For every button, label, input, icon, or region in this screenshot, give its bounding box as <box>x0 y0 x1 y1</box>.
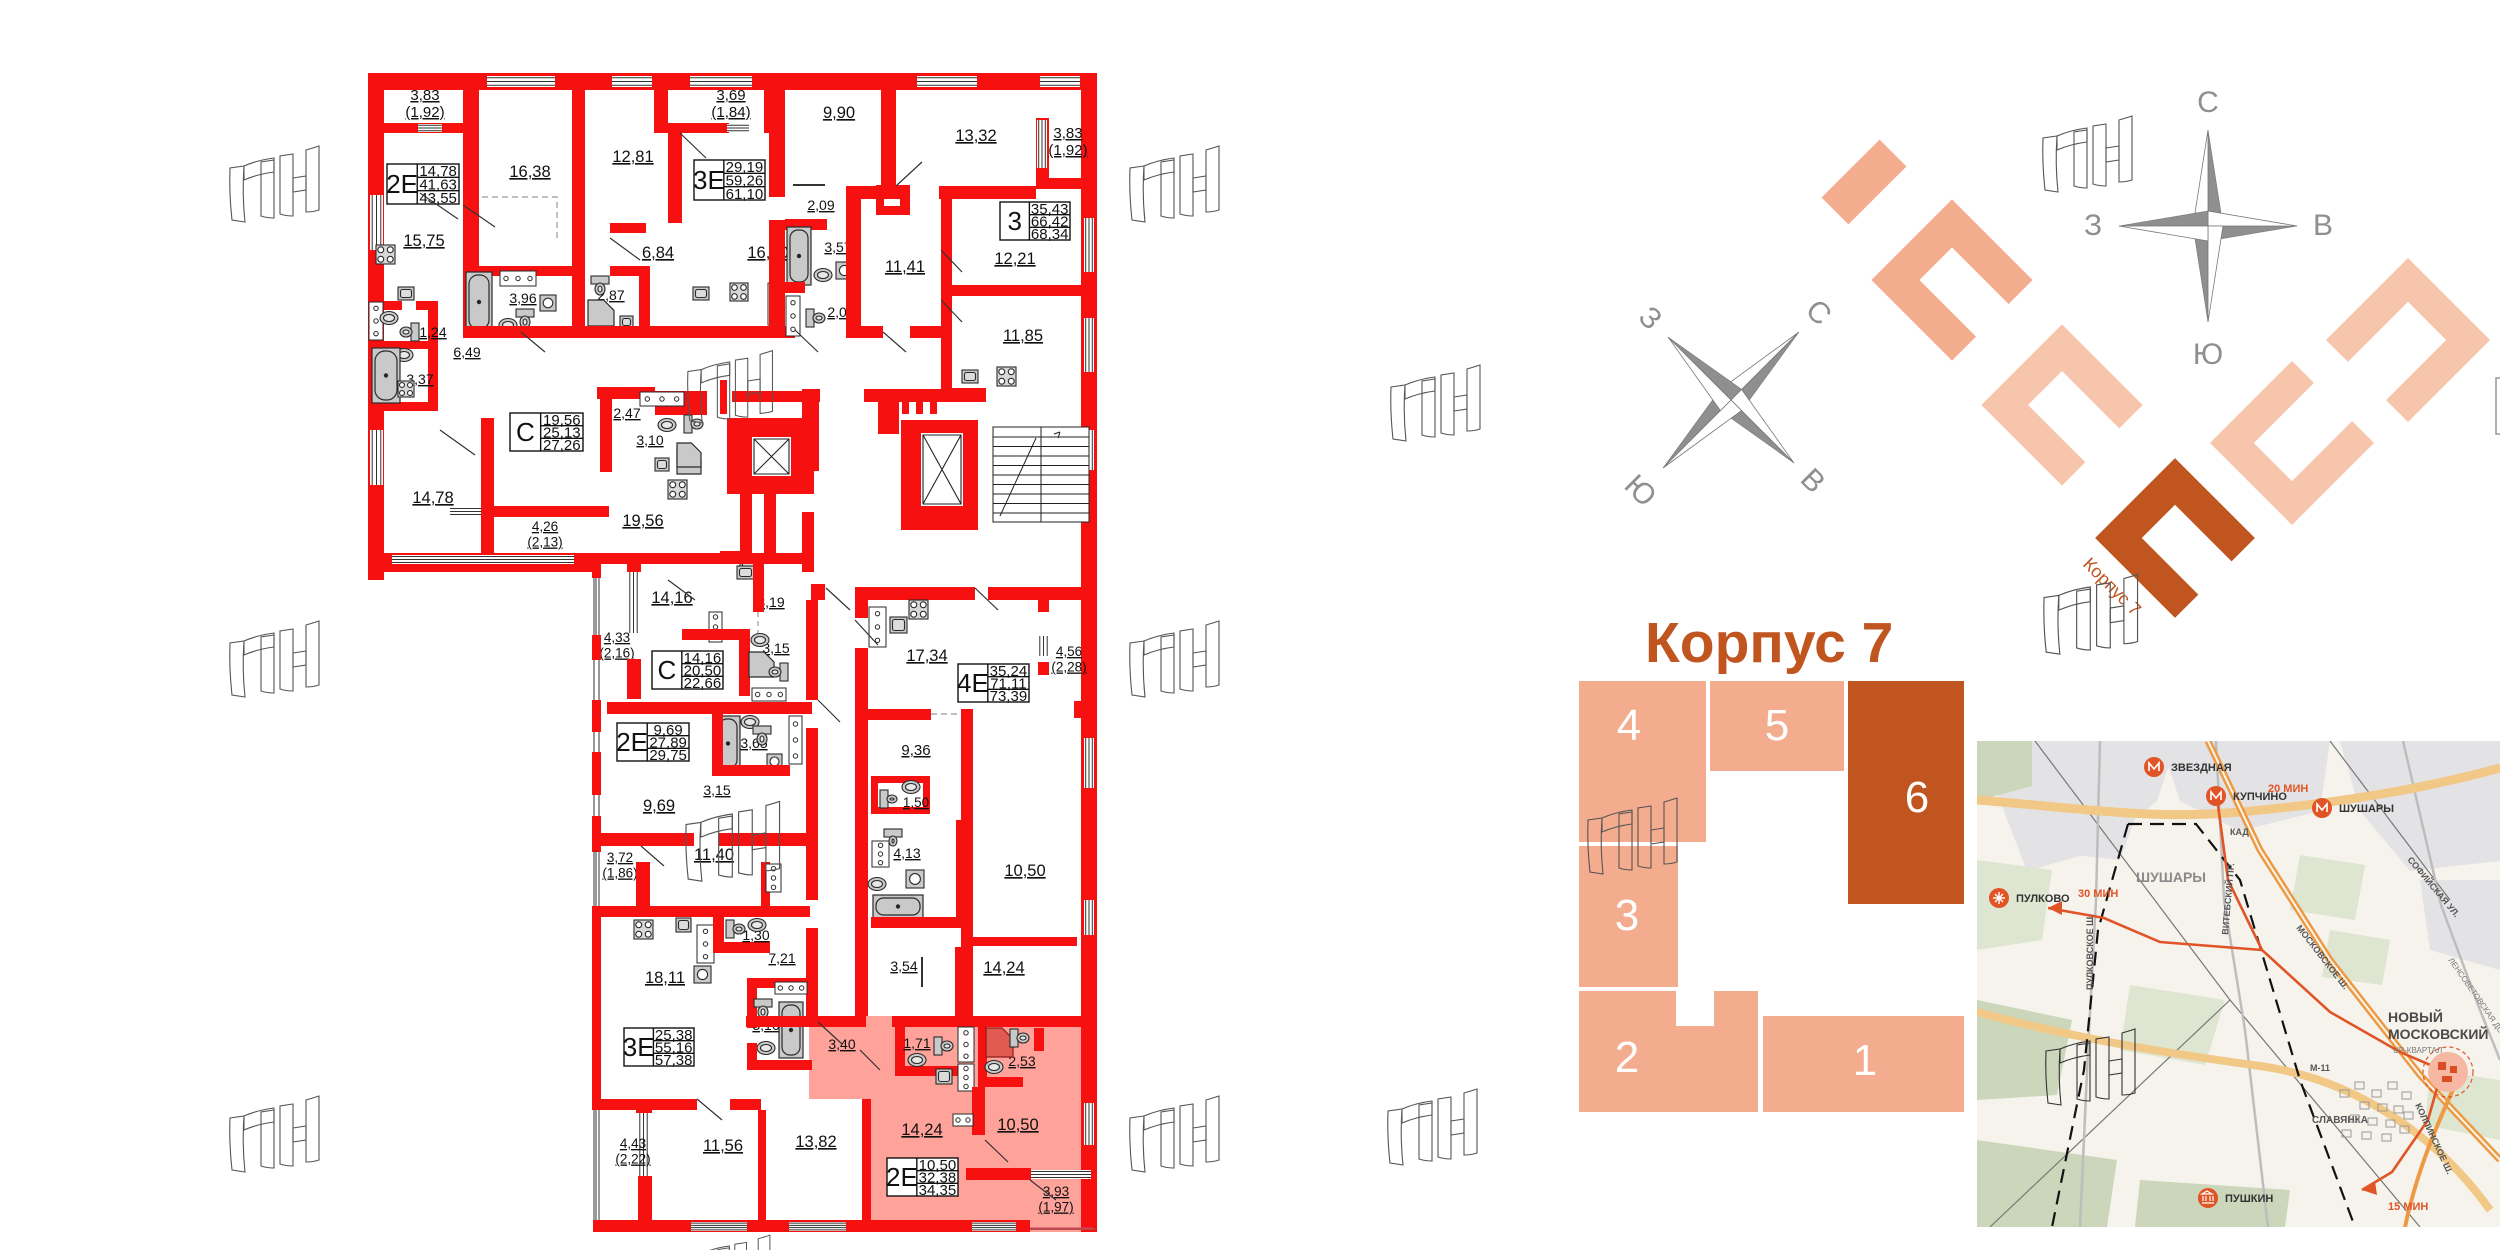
svg-text:Ю: Ю <box>2193 338 2223 371</box>
svg-text:6,84: 6,84 <box>642 244 674 262</box>
svg-text:ПУШКИН: ПУШКИН <box>2225 1193 2273 1205</box>
svg-text:2Е: 2Е <box>886 1162 918 1192</box>
svg-text:(2,13): (2,13) <box>527 535 562 550</box>
svg-text:12,81: 12,81 <box>612 148 653 166</box>
svg-text:14,24: 14,24 <box>983 959 1024 977</box>
svg-text:ПУЛКОВСКОЕ Ш.: ПУЛКОВСКОЕ Ш. <box>2085 914 2095 990</box>
svg-text:34,35: 34,35 <box>919 1182 957 1199</box>
svg-text:4,43: 4,43 <box>620 1136 646 1151</box>
svg-text:1,24: 1,24 <box>419 324 446 340</box>
svg-text:4,26: 4,26 <box>532 519 558 534</box>
svg-text:3,69: 3,69 <box>716 87 745 104</box>
svg-text:(1,84): (1,84) <box>711 104 750 121</box>
svg-text:14,16: 14,16 <box>651 589 692 607</box>
svg-text:9,90: 9,90 <box>823 104 855 122</box>
svg-text:4,13: 4,13 <box>893 845 920 861</box>
svg-text:68,34: 68,34 <box>1031 226 1069 243</box>
svg-text:3,96: 3,96 <box>509 290 536 306</box>
svg-text:В: В <box>1794 462 1831 499</box>
svg-text:3,83: 3,83 <box>410 87 439 104</box>
svg-text:М-11: М-11 <box>2310 1063 2330 1073</box>
svg-text:3,54: 3,54 <box>890 958 917 974</box>
svg-text:2Е: 2Е <box>616 727 648 757</box>
svg-text:КАД: КАД <box>2230 827 2249 837</box>
svg-text:61,10: 61,10 <box>726 186 764 203</box>
svg-text:1,71: 1,71 <box>903 1035 930 1051</box>
svg-text:Ю: Ю <box>1618 468 1663 513</box>
svg-text:UP-КВАРТАЛ: UP-КВАРТАЛ <box>2393 1046 2442 1055</box>
svg-text:1: 1 <box>1853 1036 1877 1085</box>
svg-text:11,56: 11,56 <box>703 1137 743 1155</box>
svg-text:ПУЛКОВО: ПУЛКОВО <box>2016 893 2070 905</box>
svg-text:2: 2 <box>1615 1033 1639 1082</box>
svg-text:15 МИН: 15 МИН <box>2388 1201 2428 1213</box>
svg-text:11,41: 11,41 <box>885 258 925 276</box>
svg-text:КУПЧИНО: КУПЧИНО <box>2233 791 2287 803</box>
svg-text:4Е: 4Е <box>957 668 989 698</box>
svg-text:9,36: 9,36 <box>901 742 930 759</box>
svg-text:43,55: 43,55 <box>419 190 457 207</box>
svg-text:3,40: 3,40 <box>828 1036 855 1052</box>
svg-text:(1,92): (1,92) <box>405 104 444 121</box>
svg-text:14,78: 14,78 <box>412 489 453 507</box>
svg-text:7,21: 7,21 <box>768 950 795 966</box>
svg-text:4,33: 4,33 <box>604 630 630 645</box>
svg-text:З: З <box>2084 209 2102 242</box>
svg-text:3: 3 <box>1615 891 1639 940</box>
svg-text:2,09: 2,09 <box>807 197 834 213</box>
svg-text:4,56: 4,56 <box>1056 644 1082 659</box>
svg-text:В: В <box>2313 209 2333 242</box>
svg-text:12,21: 12,21 <box>994 250 1035 268</box>
svg-text:С: С <box>1799 293 1838 332</box>
svg-text:ШУШАРЫ: ШУШАРЫ <box>2339 803 2394 815</box>
svg-text:(1,92): (1,92) <box>1048 142 1087 159</box>
svg-text:11,85: 11,85 <box>1003 327 1043 345</box>
svg-text:С: С <box>2197 86 2219 119</box>
svg-text:(2,22): (2,22) <box>615 1152 650 1167</box>
svg-text:73,39: 73,39 <box>990 688 1028 705</box>
svg-text:(2,28): (2,28) <box>1051 660 1086 675</box>
svg-text:13,32: 13,32 <box>955 127 996 145</box>
svg-text:16,38: 16,38 <box>509 163 550 181</box>
svg-text:ШУШАРЫ: ШУШАРЫ <box>2136 869 2206 885</box>
svg-text:5: 5 <box>1765 701 1789 750</box>
svg-text:3,10: 3,10 <box>636 432 663 448</box>
svg-text:МОСКОВСКИЙ: МОСКОВСКИЙ <box>2388 1025 2488 1042</box>
svg-text:(2,16): (2,16) <box>599 646 634 661</box>
svg-text:(1,86): (1,86) <box>602 866 637 881</box>
svg-text:6,49: 6,49 <box>453 344 480 360</box>
svg-text:3,83: 3,83 <box>1053 125 1082 142</box>
svg-text:Корпус 7: Корпус 7 <box>1645 611 1893 675</box>
svg-text:14,24: 14,24 <box>901 1121 942 1139</box>
svg-text:10,50: 10,50 <box>997 1116 1038 1134</box>
svg-text:6: 6 <box>1905 773 1929 822</box>
svg-text:2Е: 2Е <box>386 169 418 199</box>
svg-text:СЛАВЯНКА: СЛАВЯНКА <box>2312 1115 2368 1126</box>
svg-text:13,82: 13,82 <box>795 1133 836 1151</box>
svg-text:С: С <box>658 655 677 685</box>
svg-text:3,72: 3,72 <box>607 850 633 865</box>
svg-text:18,11: 18,11 <box>645 969 685 987</box>
svg-text:57,38: 57,38 <box>655 1052 693 1069</box>
svg-text:10,50: 10,50 <box>1004 862 1045 880</box>
svg-text:ЗВЕЗДНАЯ: ЗВЕЗДНАЯ <box>2171 762 2232 774</box>
svg-text:1,50: 1,50 <box>903 795 929 810</box>
svg-text:15,75: 15,75 <box>403 232 444 250</box>
svg-text:(1,97): (1,97) <box>1038 1200 1073 1215</box>
svg-text:3: 3 <box>1007 206 1021 236</box>
svg-text:3,93: 3,93 <box>1043 1184 1069 1199</box>
svg-text:2,47: 2,47 <box>613 405 640 421</box>
svg-text:4: 4 <box>1617 701 1641 750</box>
svg-text:3Е: 3Е <box>623 1032 655 1062</box>
svg-text:З: З <box>1632 300 1668 336</box>
svg-text:29,75: 29,75 <box>649 747 687 764</box>
svg-text:19,56: 19,56 <box>622 512 663 530</box>
svg-text:30 МИН: 30 МИН <box>2078 888 2118 900</box>
svg-text:17,34: 17,34 <box>906 647 947 665</box>
svg-text:22,66: 22,66 <box>684 675 722 692</box>
svg-text:С: С <box>516 417 535 447</box>
svg-text:3,15: 3,15 <box>703 782 730 798</box>
svg-text:9,69: 9,69 <box>643 797 675 815</box>
svg-text:3Е: 3Е <box>693 165 725 195</box>
svg-text:27,26: 27,26 <box>543 437 581 454</box>
svg-text:НОВЫЙ: НОВЫЙ <box>2388 1008 2443 1025</box>
